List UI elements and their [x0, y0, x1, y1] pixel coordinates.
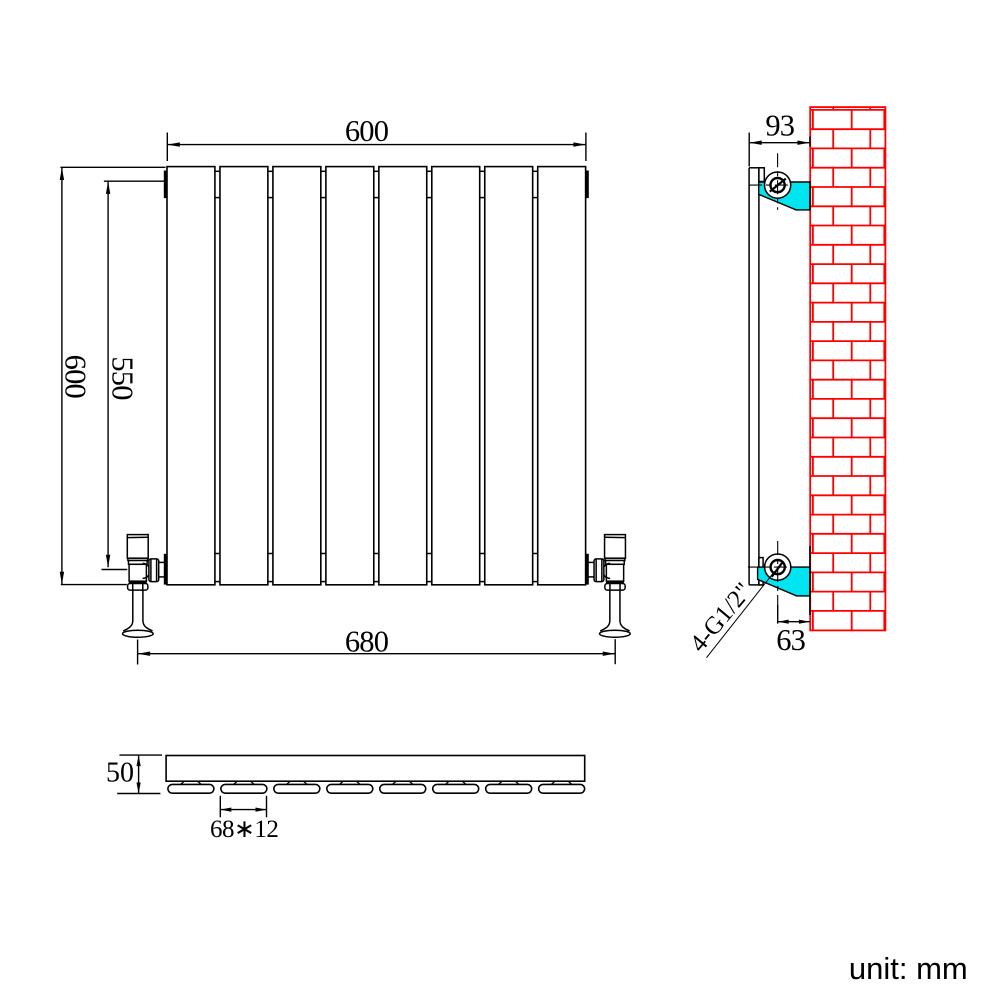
svg-text:680: 680 [345, 625, 389, 659]
svg-text:600: 600 [345, 114, 389, 148]
svg-text:63: 63 [776, 623, 805, 657]
svg-text:600: 600 [59, 355, 93, 399]
svg-text:50: 50 [106, 757, 134, 788]
svg-text:unit: mm: unit: mm [849, 951, 968, 986]
svg-text:93: 93 [765, 108, 794, 142]
svg-text:550: 550 [105, 356, 139, 400]
svg-text:68∗12: 68∗12 [210, 816, 278, 843]
